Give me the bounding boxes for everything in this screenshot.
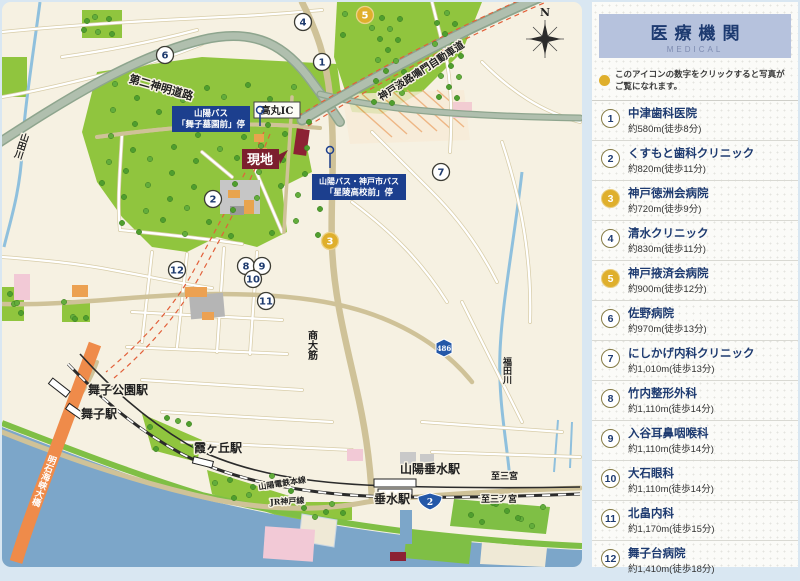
med-item-number[interactable]: 11 [601, 509, 620, 528]
station-label-maiko-koen: 舞子公園駅 [87, 382, 149, 397]
med-item-distance: 約970m(徒歩13分) [628, 321, 707, 335]
med-item-distance: 約1,110m(徒歩14分) [628, 441, 714, 455]
map-marker-7[interactable]: 7 [433, 164, 450, 181]
rail-label-jr: JR神戸線 [269, 495, 305, 507]
svg-text:10: 10 [246, 275, 260, 286]
svg-text:11: 11 [259, 297, 273, 308]
panel-header: 医療機関 MEDICAL [599, 14, 791, 58]
svg-text:2: 2 [427, 498, 433, 508]
note-text: このアイコンの数字をクリックすると写真がご覧になれます。 [615, 68, 792, 92]
station-label-sanyo-tarumi: 山陽垂水駅 [400, 461, 461, 476]
map-marker-11[interactable]: 11 [258, 293, 275, 310]
map-marker-1[interactable]: 1 [314, 54, 331, 71]
svg-text:山陽バス: 山陽バス [194, 108, 228, 119]
med-item-12[interactable]: 12舞子台病院約1,410m(徒歩18分) [592, 541, 798, 581]
map-marker-3[interactable]: 3 [322, 233, 339, 250]
svg-text:高丸IC: 高丸IC [261, 104, 294, 117]
med-item-name: 入谷耳鼻咽喉科 [628, 427, 714, 440]
med-item-number[interactable]: 2 [601, 149, 620, 168]
med-item-number[interactable]: 12 [601, 549, 620, 568]
med-item-name: 北畠内科 [628, 507, 715, 520]
med-item-8[interactable]: 8竹内整形外科約1,110m(徒歩14分) [592, 381, 798, 421]
station-label-maiko: 舞子駅 [80, 406, 118, 421]
med-item-number[interactable]: 1 [601, 109, 620, 128]
map-marker-5[interactable]: 5 [357, 7, 374, 24]
svg-text:486: 486 [437, 344, 452, 353]
direction-label-jr: 至三ノ宮 [481, 493, 517, 505]
direction-label-sanyo: 至三宮 [491, 470, 518, 482]
med-item-distance: 約1,170m(徒歩15分) [628, 521, 715, 535]
svg-text:4: 4 [300, 18, 307, 29]
route-badge-486: 486 [436, 339, 452, 357]
med-item-name: くすもと歯科クリニック [628, 147, 754, 160]
med-item-distance: 約580m(徒歩8分) [628, 121, 701, 135]
takamaru-ic-label: 高丸IC [254, 102, 300, 118]
medical-list: 1中津歯科医院約580m(徒歩8分)2くすもと歯科クリニック約820m(徒歩11… [592, 101, 798, 581]
med-item-name: 中津歯科医院 [628, 107, 701, 120]
map-svg: 第二神明道路 神戸淡路鳴門自動車道 高丸IC 山田川 福田川 商大筋 明石海峡大… [2, 2, 582, 567]
svg-text:山陽バス・神戸市バス: 山陽バス・神戸市バス [319, 176, 399, 186]
med-item-10[interactable]: 10大石眼科約1,110m(徒歩14分) [592, 461, 798, 501]
med-item-number[interactable]: 3 [601, 189, 620, 208]
med-item-number[interactable]: 7 [601, 349, 620, 368]
gold-marker-icon [599, 75, 610, 86]
med-item-name: 神戸掖済会病院 [628, 267, 709, 280]
svg-text:現地: 現地 [247, 152, 273, 168]
med-item-number[interactable]: 4 [601, 229, 620, 248]
medical-panel: 医療機関 MEDICAL このアイコンの数字をクリックすると写真がご覧になれます… [592, 2, 798, 567]
svg-text:1: 1 [319, 58, 326, 69]
med-item-11[interactable]: 11北畠内科約1,170m(徒歩15分) [592, 501, 798, 541]
med-item-1[interactable]: 1中津歯科医院約580m(徒歩8分) [592, 101, 798, 141]
med-item-6[interactable]: 6佐野病院約970m(徒歩13分) [592, 301, 798, 341]
panel-title: 医療機関 [599, 19, 791, 44]
med-item-number[interactable]: 10 [601, 469, 620, 488]
page-frame: 第二神明道路 神戸淡路鳴門自動車道 高丸IC 山田川 福田川 商大筋 明石海峡大… [0, 0, 800, 569]
med-item-distance: 約1,110m(徒歩14分) [628, 401, 714, 415]
med-item-distance: 約1,110m(徒歩14分) [628, 481, 714, 495]
svg-text:「星陵高校前」停: 「星陵高校前」停 [325, 187, 394, 198]
med-item-number[interactable]: 6 [601, 309, 620, 328]
med-item-number[interactable]: 5 [601, 269, 620, 288]
svg-text:「舞子墓園前」停: 「舞子墓園前」停 [177, 119, 246, 130]
med-item-4[interactable]: 4清水クリニック約830m(徒歩11分) [592, 221, 798, 261]
med-item-name: 佐野病院 [628, 307, 707, 320]
med-item-distance: 約830m(徒歩11分) [628, 241, 709, 255]
med-item-9[interactable]: 9入谷耳鼻咽喉科約1,110m(徒歩14分) [592, 421, 798, 461]
med-item-name: 神戸徳洲会病院 [628, 187, 709, 200]
bus-stop-maiko-boen: 山陽バス 「舞子墓園前」停 [172, 106, 264, 132]
med-item-name: 清水クリニック [628, 227, 709, 240]
svg-text:8: 8 [243, 262, 250, 273]
med-item-2[interactable]: 2くすもと歯科クリニック約820m(徒歩11分) [592, 141, 798, 181]
svg-text:2: 2 [210, 195, 217, 206]
map-marker-6[interactable]: 6 [157, 47, 174, 64]
med-item-name: 竹内整形外科 [628, 387, 714, 400]
med-item-distance: 約720m(徒歩9分) [628, 201, 709, 215]
map-marker-2[interactable]: 2 [205, 191, 222, 208]
svg-text:3: 3 [327, 237, 334, 248]
panel-note: このアイコンの数字をクリックすると写真がご覧になれます。 [592, 66, 798, 101]
map-marker-10[interactable]: 10 [245, 271, 262, 288]
med-item-distance: 約1,410m(徒歩18分) [628, 561, 715, 575]
med-item-3[interactable]: 3神戸徳洲会病院約720m(徒歩9分) [592, 181, 798, 221]
svg-text:12: 12 [170, 266, 184, 277]
svg-text:5: 5 [362, 11, 369, 22]
med-item-distance: 約820m(徒歩11分) [628, 161, 754, 175]
map-marker-12[interactable]: 12 [169, 262, 186, 279]
station-label-kasumigaoka: 霞ヶ丘駅 [194, 440, 243, 455]
svg-text:N: N [540, 6, 550, 19]
med-item-distance: 約900m(徒歩12分) [628, 281, 709, 295]
med-item-5[interactable]: 5神戸掖済会病院約900m(徒歩12分) [592, 261, 798, 301]
med-item-number[interactable]: 8 [601, 389, 620, 408]
svg-text:6: 6 [162, 51, 169, 62]
med-item-name: 舞子台病院 [628, 547, 715, 560]
svg-text:7: 7 [438, 168, 445, 179]
med-item-name: にしかげ内科クリニック [628, 347, 755, 360]
med-item-7[interactable]: 7にしかげ内科クリニック約1,010m(徒歩13分) [592, 341, 798, 381]
panel-subtitle: MEDICAL [599, 45, 791, 54]
river-label-fukuda: 福田川 [501, 356, 513, 385]
med-item-number[interactable]: 9 [601, 429, 620, 448]
med-item-distance: 約1,010m(徒歩13分) [628, 361, 755, 375]
svg-text:9: 9 [259, 262, 266, 273]
station-label-tarumi: 垂水駅 [374, 491, 411, 506]
area-map: 第二神明道路 神戸淡路鳴門自動車道 高丸IC 山田川 福田川 商大筋 明石海峡大… [2, 2, 582, 567]
map-marker-4[interactable]: 4 [295, 14, 312, 31]
med-item-name: 大石眼科 [628, 467, 714, 480]
